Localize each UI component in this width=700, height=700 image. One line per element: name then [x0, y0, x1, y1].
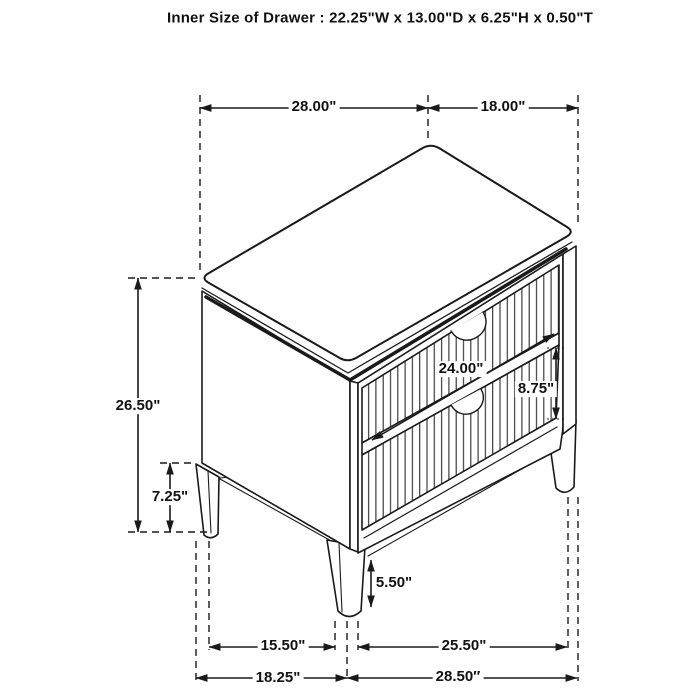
- dim-label-top-width: 28.00": [289, 99, 340, 115]
- left-rear-leg: [196, 464, 219, 538]
- dim-label-top-depth: 18.00": [478, 99, 529, 115]
- front-corner-post: [350, 381, 358, 552]
- nightstand-line-drawing: [0, 0, 700, 700]
- dim-label-base-span-right: 25.50": [439, 638, 490, 654]
- diagram-title: Inner Size of Drawer : 22.25"W x 13.00"D…: [167, 10, 593, 27]
- dim-label-drawer-width: 24.00": [436, 361, 487, 377]
- dim-label-drawer-height: 8.75": [515, 381, 557, 397]
- right-corner-post: [563, 246, 576, 434]
- dim-label-base-width: 28.50″: [433, 669, 484, 685]
- dim-label-base-span-left: 18.25": [253, 670, 304, 686]
- dim-label-front-leg-offset: 15.50": [258, 638, 309, 654]
- dim-label-overall-height: 26.50": [113, 398, 164, 414]
- dim-label-front-leg-height: 5.50": [373, 575, 415, 591]
- dim-label-rear-leg-height: 7.25": [149, 489, 191, 505]
- product-dimension-diagram: Inner Size of Drawer : 22.25"W x 13.00"D…: [0, 0, 700, 700]
